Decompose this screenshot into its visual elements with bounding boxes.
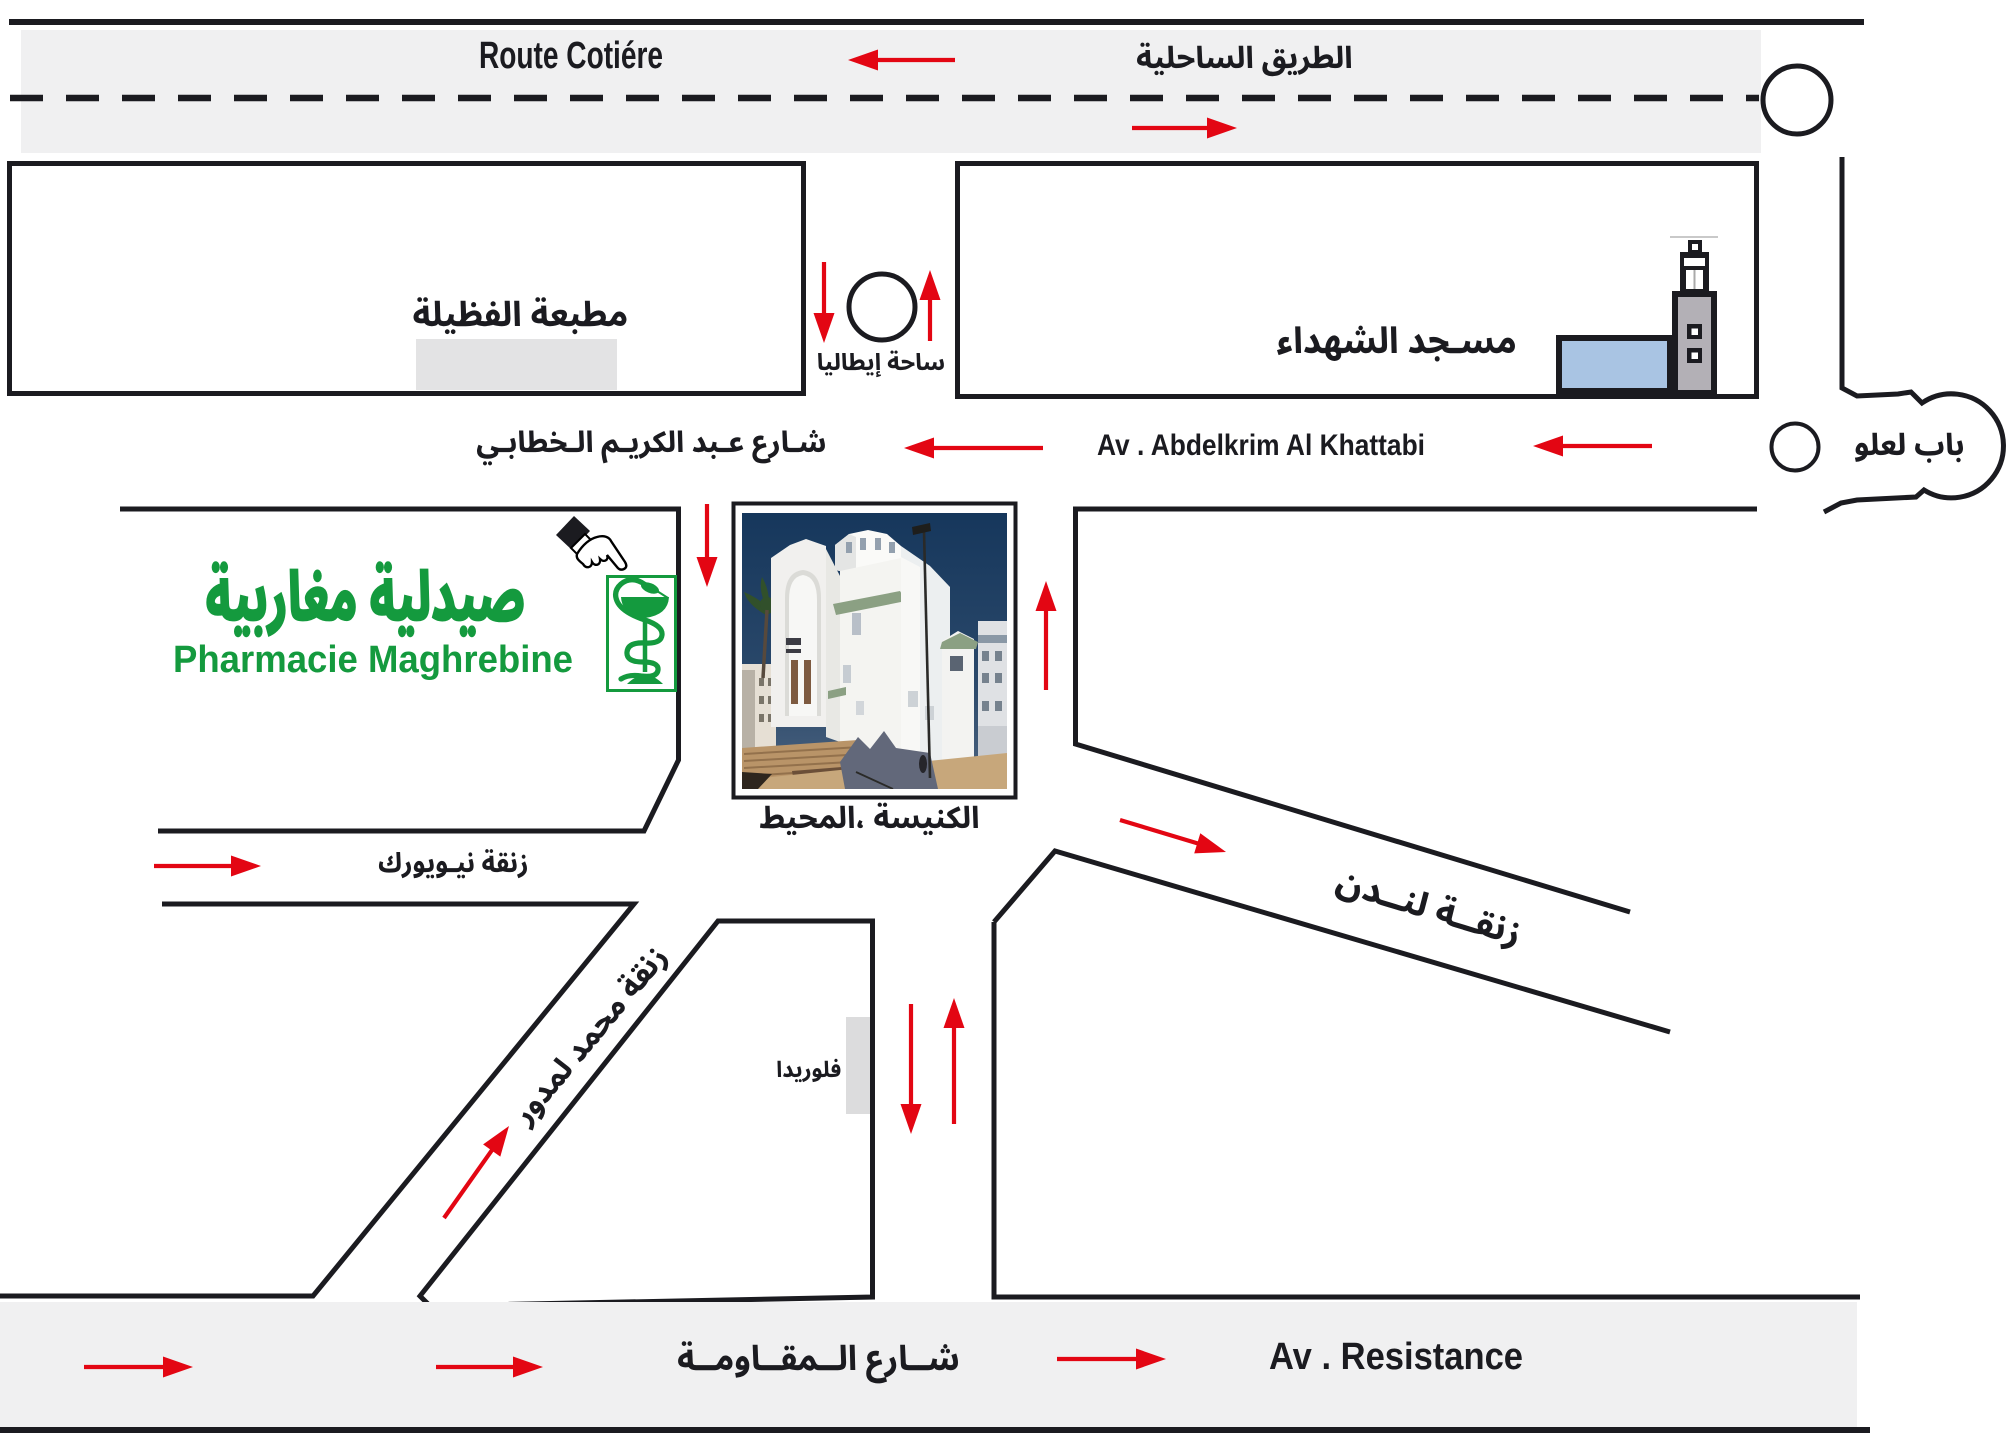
svg-text:Pharmacie Maghrebine: Pharmacie Maghrebine [173, 639, 573, 681]
svg-text:Route Cotiére: Route Cotiére [479, 35, 663, 77]
svg-text:Av . Resistance: Av . Resistance [1269, 1336, 1523, 1378]
svg-text:Av . Abdelkrim Al Khattabi: Av . Abdelkrim Al Khattabi [1097, 429, 1425, 462]
